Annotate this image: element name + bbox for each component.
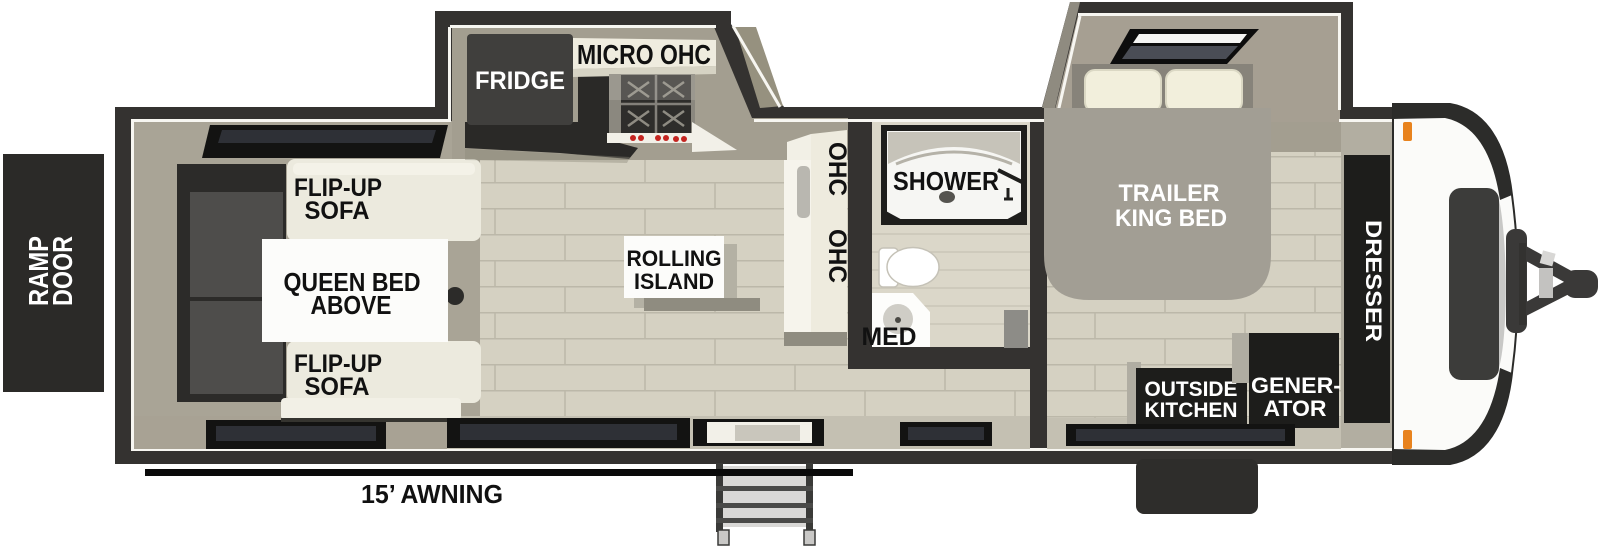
svg-text:DRESSER: DRESSER <box>1361 220 1386 342</box>
svg-text:ABOVE: ABOVE <box>311 290 392 320</box>
svg-text:ROLLING: ROLLING <box>627 246 722 271</box>
svg-text:SOFA: SOFA <box>305 197 370 225</box>
svg-text:GENER-: GENER- <box>1251 373 1341 398</box>
svg-text:ISLAND: ISLAND <box>634 269 714 294</box>
svg-text:KING BED: KING BED <box>1115 205 1227 232</box>
svg-text:KITCHEN: KITCHEN <box>1145 399 1238 422</box>
svg-text:DOOR: DOOR <box>47 236 78 306</box>
svg-text:MED: MED <box>862 323 917 351</box>
svg-text:OUTSIDE: OUTSIDE <box>1145 378 1238 401</box>
svg-text:OHC: OHC <box>823 229 851 283</box>
svg-text:15’ AWNING: 15’ AWNING <box>361 479 503 509</box>
svg-text:SHOWER: SHOWER <box>893 166 999 196</box>
svg-text:ATOR: ATOR <box>1264 396 1327 421</box>
svg-text:MICRO OHC: MICRO OHC <box>577 39 711 70</box>
svg-text:SOFA: SOFA <box>305 373 370 401</box>
svg-text:TRAILER: TRAILER <box>1119 180 1220 207</box>
svg-text:FRIDGE: FRIDGE <box>475 67 565 95</box>
svg-text:OHC: OHC <box>823 142 851 196</box>
